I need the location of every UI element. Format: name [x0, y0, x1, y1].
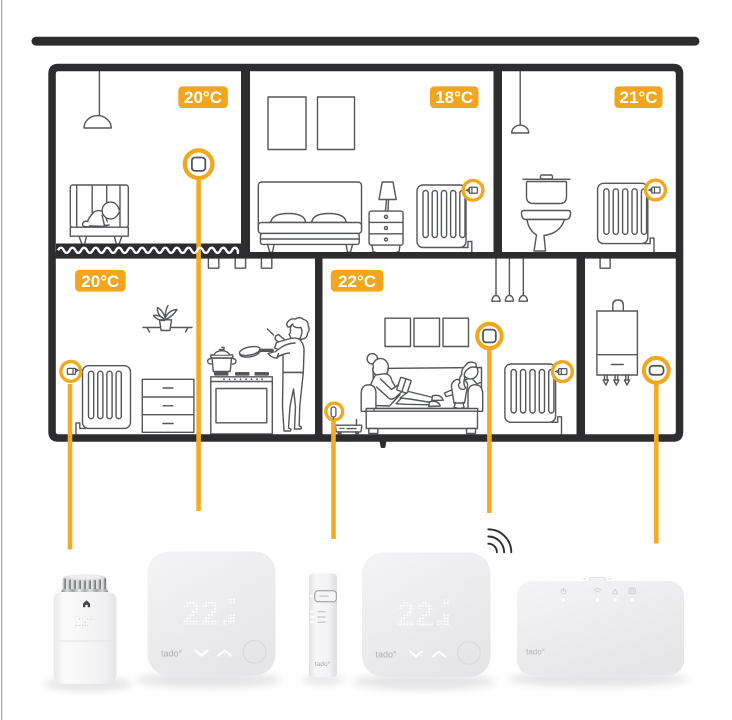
- svg-text:21°C: 21°C: [620, 88, 658, 107]
- svg-text:tado°: tado°: [375, 650, 397, 660]
- svg-text:tado°: tado°: [161, 649, 183, 659]
- svg-text:tado°: tado°: [315, 660, 331, 668]
- svg-text:20°C: 20°C: [81, 272, 119, 291]
- svg-text:18°C: 18°C: [435, 88, 473, 107]
- svg-text:22°: 22°: [73, 613, 94, 629]
- svg-text:22.: 22.: [182, 595, 229, 632]
- svg-text:22°C: 22°C: [338, 272, 376, 291]
- svg-text:22.: 22.: [397, 596, 444, 633]
- svg-text:tado°: tado°: [526, 648, 545, 657]
- svg-text:20°C: 20°C: [184, 88, 222, 107]
